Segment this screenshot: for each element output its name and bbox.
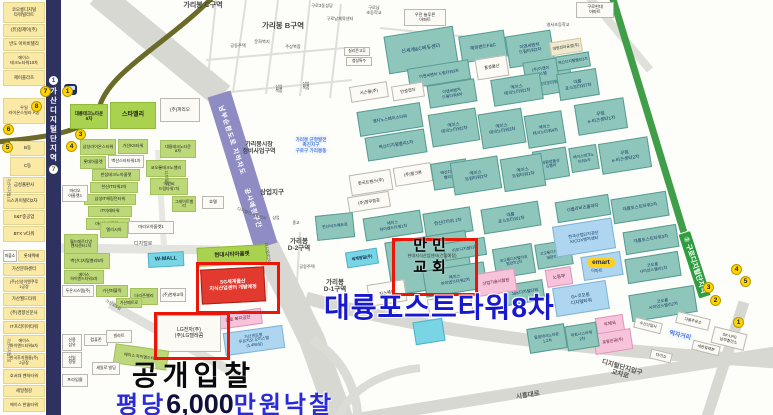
price-suffix: 만원낙찰 bbox=[234, 392, 334, 415]
area-label: 구로3동성당 bbox=[304, 2, 340, 10]
map-block: 에이스 한솔타워 bbox=[3, 398, 45, 412]
map-canvas: 코오롱디지털 타워빌라트(유)정제이(주)반도 아이비텔리에이스 테크노타워10… bbox=[0, 0, 773, 415]
map-block: 세일로 빌딩 bbox=[92, 362, 120, 375]
area-label: 주상복합 bbox=[281, 42, 305, 52]
line-7-badge: 7 bbox=[49, 165, 58, 174]
map-block: 에이스 테크노타워4차 bbox=[524, 110, 567, 149]
map-block: C동 bbox=[10, 157, 45, 176]
map-block: IT미래타워 bbox=[88, 206, 132, 217]
map-block: 월드메르디앙 벤처센터1차 bbox=[64, 234, 98, 254]
area-label: 공동주택 bbox=[294, 263, 320, 271]
area-label: 영서초등학교 bbox=[540, 21, 576, 30]
daeryung-post-tower-annotation: 대륭포스트타워8차 bbox=[324, 286, 555, 326]
map-block: 청성특수 bbox=[346, 57, 372, 66]
map-block: 삼성라이온스타워 bbox=[80, 139, 116, 155]
area-label: 상업 bbox=[268, 215, 284, 222]
map-block: 롯데아울렛 bbox=[80, 156, 106, 169]
area-label: 상업지구 bbox=[252, 188, 292, 197]
exit-number: 5 bbox=[2, 142, 13, 153]
exit-number: 3 bbox=[703, 282, 714, 293]
map-block: 두온시스템(주) bbox=[62, 285, 94, 297]
highlight-box bbox=[196, 262, 280, 314]
price-value: 6,000 bbox=[166, 389, 234, 415]
area-label: 상업 복합 bbox=[297, 80, 315, 92]
map-block: 구로현대 아파트 bbox=[576, 2, 614, 18]
map-block: 삼성IT해링턴타워 bbox=[84, 194, 136, 205]
map-block: 반도 아이비텔리 bbox=[3, 38, 45, 51]
map-block: (주)경향신문사 bbox=[3, 307, 45, 320]
station-name: 가산디지털단지역 bbox=[48, 87, 59, 163]
map-block: 에이스테크노 타워5차 bbox=[568, 144, 600, 173]
map-block: W-MALL bbox=[148, 251, 185, 268]
exit-number: 2 bbox=[710, 295, 721, 306]
area-label: 종교 bbox=[288, 220, 304, 227]
area-label: 상업 복합 bbox=[270, 83, 288, 95]
map-block: 대륭테크노타운 8차 bbox=[160, 140, 196, 158]
map-block: 에이스 테크노타워3차 bbox=[478, 108, 527, 149]
map-block: 에이스 트윈타워1차 bbox=[500, 153, 547, 192]
map-block: S&T중공업 bbox=[3, 210, 45, 225]
manmin-line1: 만민 bbox=[392, 238, 472, 253]
map-block: (유)정제이(주) bbox=[3, 24, 45, 37]
subway-line-band: 1 가산디지털단지역 7 bbox=[46, 0, 61, 415]
map-block: BTX V타워 bbox=[3, 226, 45, 242]
map-block: 대륭테크노타운 5차 bbox=[70, 104, 108, 129]
map-block: 한섬테크노아울렛 bbox=[92, 169, 140, 181]
map-block: 엘리시아 bbox=[100, 222, 128, 238]
map-block: 롯데택배 bbox=[18, 250, 45, 262]
manmin-line2: 교회 bbox=[392, 260, 472, 275]
area-label: 가리봉 C구역 bbox=[176, 1, 230, 11]
map-block: 마리오 아울렛3 bbox=[62, 185, 88, 202]
map-block: 마리오아울렛1 bbox=[128, 221, 174, 234]
price-prefix: 평당 bbox=[116, 392, 166, 415]
map-block: 호텔 bbox=[202, 196, 224, 209]
exit-number: 6 bbox=[3, 124, 14, 135]
map-block: 제이플라츠 bbox=[3, 70, 45, 86]
map-block: 한신IT타워2차 bbox=[90, 182, 138, 193]
map-block: 프라임몰 bbox=[62, 374, 88, 387]
line-1-badge: 1 bbox=[49, 76, 58, 85]
price-annotation: 평당6,000만원낙찰 bbox=[116, 385, 334, 415]
highlight-box bbox=[154, 312, 230, 360]
exit-number: 3 bbox=[75, 129, 86, 140]
map-block: (주)파리오 bbox=[160, 98, 200, 122]
area-label: 가리봉시장 정비사업구역 bbox=[230, 141, 288, 157]
map-block: 빌라트 bbox=[106, 330, 132, 343]
area-label: 가리봉 B구역 bbox=[252, 20, 314, 32]
map-block: 에이스 테크노타워10차 bbox=[3, 52, 45, 69]
map-block: 스타밸리 bbox=[110, 102, 156, 129]
road-label: 디지털로 bbox=[134, 242, 152, 248]
map-block: 신용 섬유 bbox=[62, 334, 82, 351]
map-block: 그레이트밸리 bbox=[172, 196, 196, 212]
map-block: B동 bbox=[10, 141, 45, 156]
area-label: 구로남체육센터 bbox=[322, 15, 358, 24]
exit-number: 4 bbox=[731, 264, 742, 275]
map-block: 코오롱디지털 타워빌라트 bbox=[3, 2, 45, 23]
manmin-note: 현대지식산업센터(건립예정) bbox=[392, 254, 472, 259]
map-block: 실리콘고무 bbox=[344, 47, 370, 56]
map-block: 가산월드타워 bbox=[3, 293, 45, 306]
area-label: 문화복지 bbox=[250, 38, 274, 46]
map-block: 세일철강 bbox=[3, 385, 45, 397]
exit-number: 1 bbox=[733, 317, 744, 328]
map-block: 가산KS타워 bbox=[118, 139, 148, 154]
exit-number: 8 bbox=[31, 101, 42, 112]
area-label: 공동주택 bbox=[226, 42, 250, 50]
exit-number: 1 bbox=[62, 86, 73, 97]
map-block: 벽산디지털밸리5차 bbox=[64, 253, 110, 269]
map-block: (주)천재교육 bbox=[160, 288, 186, 302]
map-block: 선일 정밀 bbox=[62, 352, 82, 368]
map-block: 가산퍼블릭 bbox=[96, 285, 128, 297]
exit-number: 4 bbox=[66, 141, 77, 152]
map-block: 호서대 벤처타워 bbox=[3, 369, 45, 384]
map-block: 에이스 하이엔드타워3차 bbox=[64, 270, 104, 284]
road-label: 가산디지털1로 bbox=[6, 178, 11, 202]
exit-number: 7 bbox=[40, 86, 51, 97]
map-block: 가산문화센터 bbox=[3, 263, 45, 276]
area-label: 가리봉 D-2구역 bbox=[272, 235, 326, 255]
map-block: 파출소 bbox=[3, 250, 17, 262]
map-block: 컴퓨존 bbox=[84, 334, 108, 346]
area-label: 가리봉 균형발전 촉진지구 구로구 가리봉동 bbox=[288, 131, 334, 159]
map-block: (주)신성이엔쿠루 1공장 bbox=[3, 277, 45, 292]
road-label: 가산디지털1로 bbox=[6, 338, 11, 362]
map-block: 파트너스타워 2차 bbox=[564, 322, 600, 352]
map-block: IT프리미어타워 bbox=[3, 321, 45, 334]
exit-number: 5 bbox=[740, 276, 751, 287]
road-label: 디지털로 bbox=[163, 171, 169, 187]
area-label: 구로남 초등학교 bbox=[356, 4, 392, 17]
emart-label: 이마트 bbox=[591, 268, 603, 274]
emart-logo: emart bbox=[587, 258, 615, 267]
manmin-church-annotation: 만민 현대지식산업센터(건립예정) 교회 bbox=[392, 238, 472, 290]
map-block: 벽산스타타워1차 bbox=[108, 155, 144, 168]
map-block: 우진 늘푸른 아파트 bbox=[404, 9, 446, 26]
